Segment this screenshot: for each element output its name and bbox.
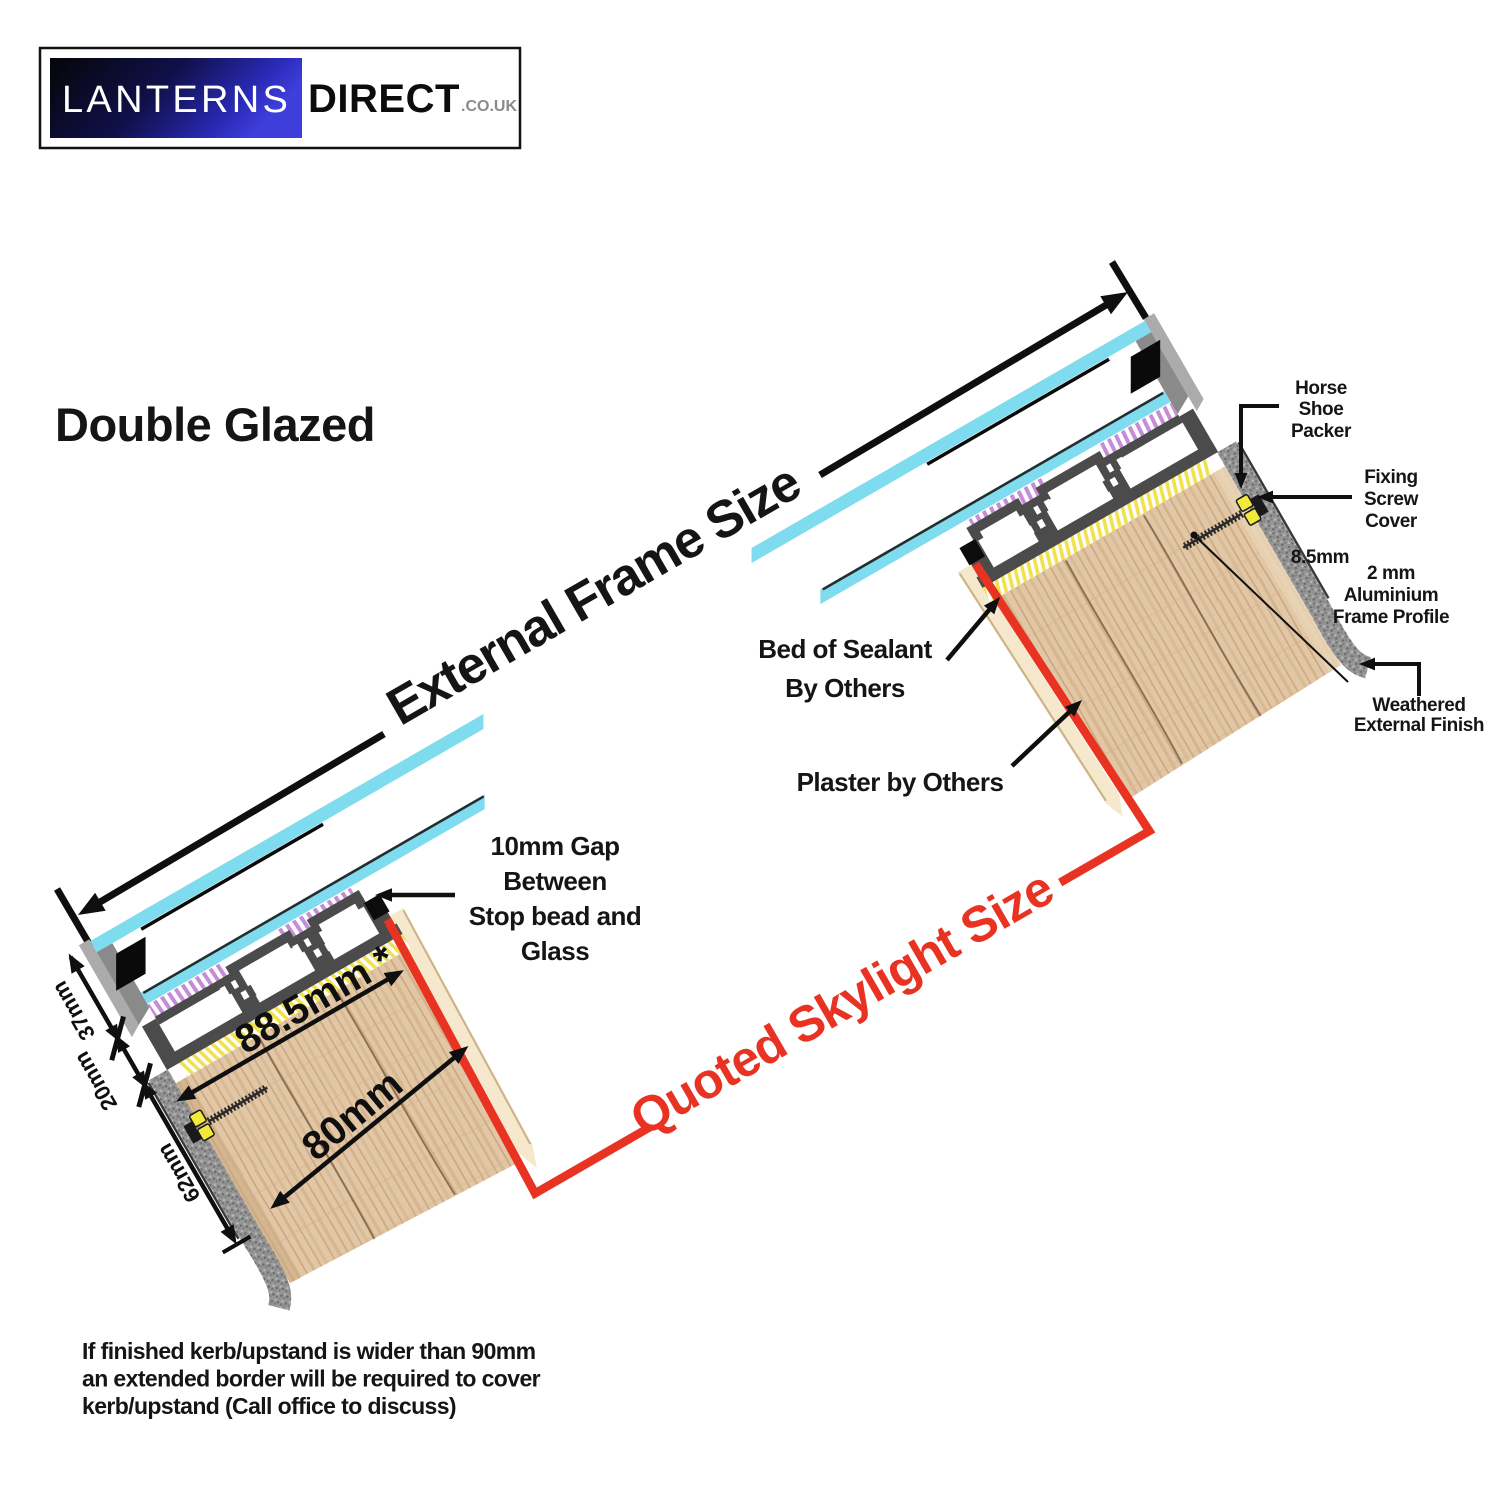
svg-text:.CO.UK: .CO.UK bbox=[461, 98, 517, 115]
svg-text:Double Glazed: Double Glazed bbox=[55, 398, 375, 451]
svg-text:Packer: Packer bbox=[1291, 421, 1352, 442]
svg-text:LANTERNS: LANTERNS bbox=[62, 79, 291, 121]
svg-text:DIRECT: DIRECT bbox=[308, 77, 460, 121]
svg-text:Aluminium: Aluminium bbox=[1344, 585, 1439, 606]
svg-text:Plaster by Others: Plaster by Others bbox=[797, 767, 1004, 797]
svg-text:Stop bead and: Stop bead and bbox=[469, 901, 642, 931]
svg-text:Between: Between bbox=[503, 866, 606, 896]
svg-text:Fixing: Fixing bbox=[1364, 467, 1418, 488]
svg-text:Glass: Glass bbox=[521, 936, 589, 966]
svg-text:an extended border will be req: an extended border will be required to c… bbox=[82, 1366, 541, 1392]
svg-text:8.5mm: 8.5mm bbox=[1291, 547, 1349, 568]
svg-text:Bed of Sealant: Bed of Sealant bbox=[758, 634, 932, 664]
svg-text:External Finish: External Finish bbox=[1354, 715, 1484, 736]
svg-text:Shoe: Shoe bbox=[1299, 399, 1344, 420]
svg-text:2 mm: 2 mm bbox=[1367, 563, 1415, 584]
svg-text:By Others: By Others bbox=[785, 673, 905, 703]
svg-text:Cover: Cover bbox=[1365, 511, 1418, 532]
svg-text:Weathered: Weathered bbox=[1372, 695, 1465, 716]
svg-text:10mm Gap: 10mm Gap bbox=[491, 831, 620, 861]
svg-text:Frame Profile: Frame Profile bbox=[1333, 607, 1449, 628]
svg-text:Screw: Screw bbox=[1364, 489, 1419, 510]
svg-text:If finished kerb/upstand is wi: If finished kerb/upstand is wider than 9… bbox=[82, 1338, 536, 1364]
svg-text:kerb/upstand (Call office to d: kerb/upstand (Call office to discuss) bbox=[82, 1393, 456, 1419]
svg-text:Horse: Horse bbox=[1295, 378, 1347, 399]
